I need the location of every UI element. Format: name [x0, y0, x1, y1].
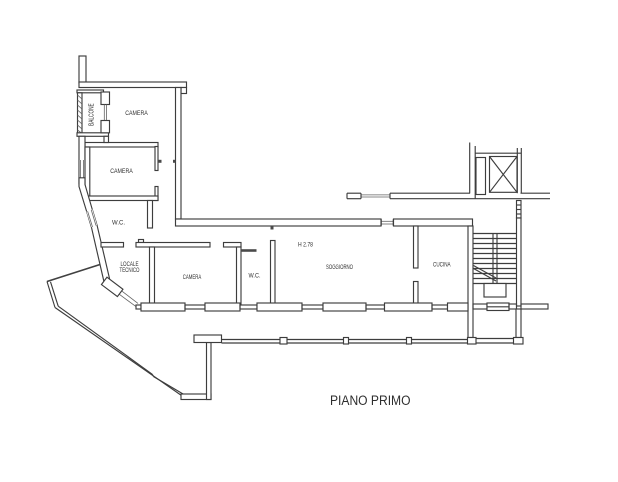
svg-text:SOGGIORNO: SOGGIORNO [326, 265, 353, 271]
svg-text:BALCONE: BALCONE [88, 103, 95, 126]
svg-text:W.C.: W.C. [249, 272, 261, 279]
svg-text:CAMERA: CAMERA [110, 169, 133, 175]
svg-text:CUCINA: CUCINA [433, 263, 451, 269]
svg-text:TECNICO: TECNICO [120, 268, 140, 274]
svg-text:CAMERA: CAMERA [125, 111, 148, 117]
svg-text:LOCALE: LOCALE [121, 262, 139, 268]
svg-text:PIANO PRIMO: PIANO PRIMO [330, 393, 411, 409]
svg-text:H 2.78: H 2.78 [298, 243, 314, 249]
svg-text:CAMERA: CAMERA [183, 275, 202, 281]
svg-text:W.C.: W.C. [112, 220, 125, 227]
